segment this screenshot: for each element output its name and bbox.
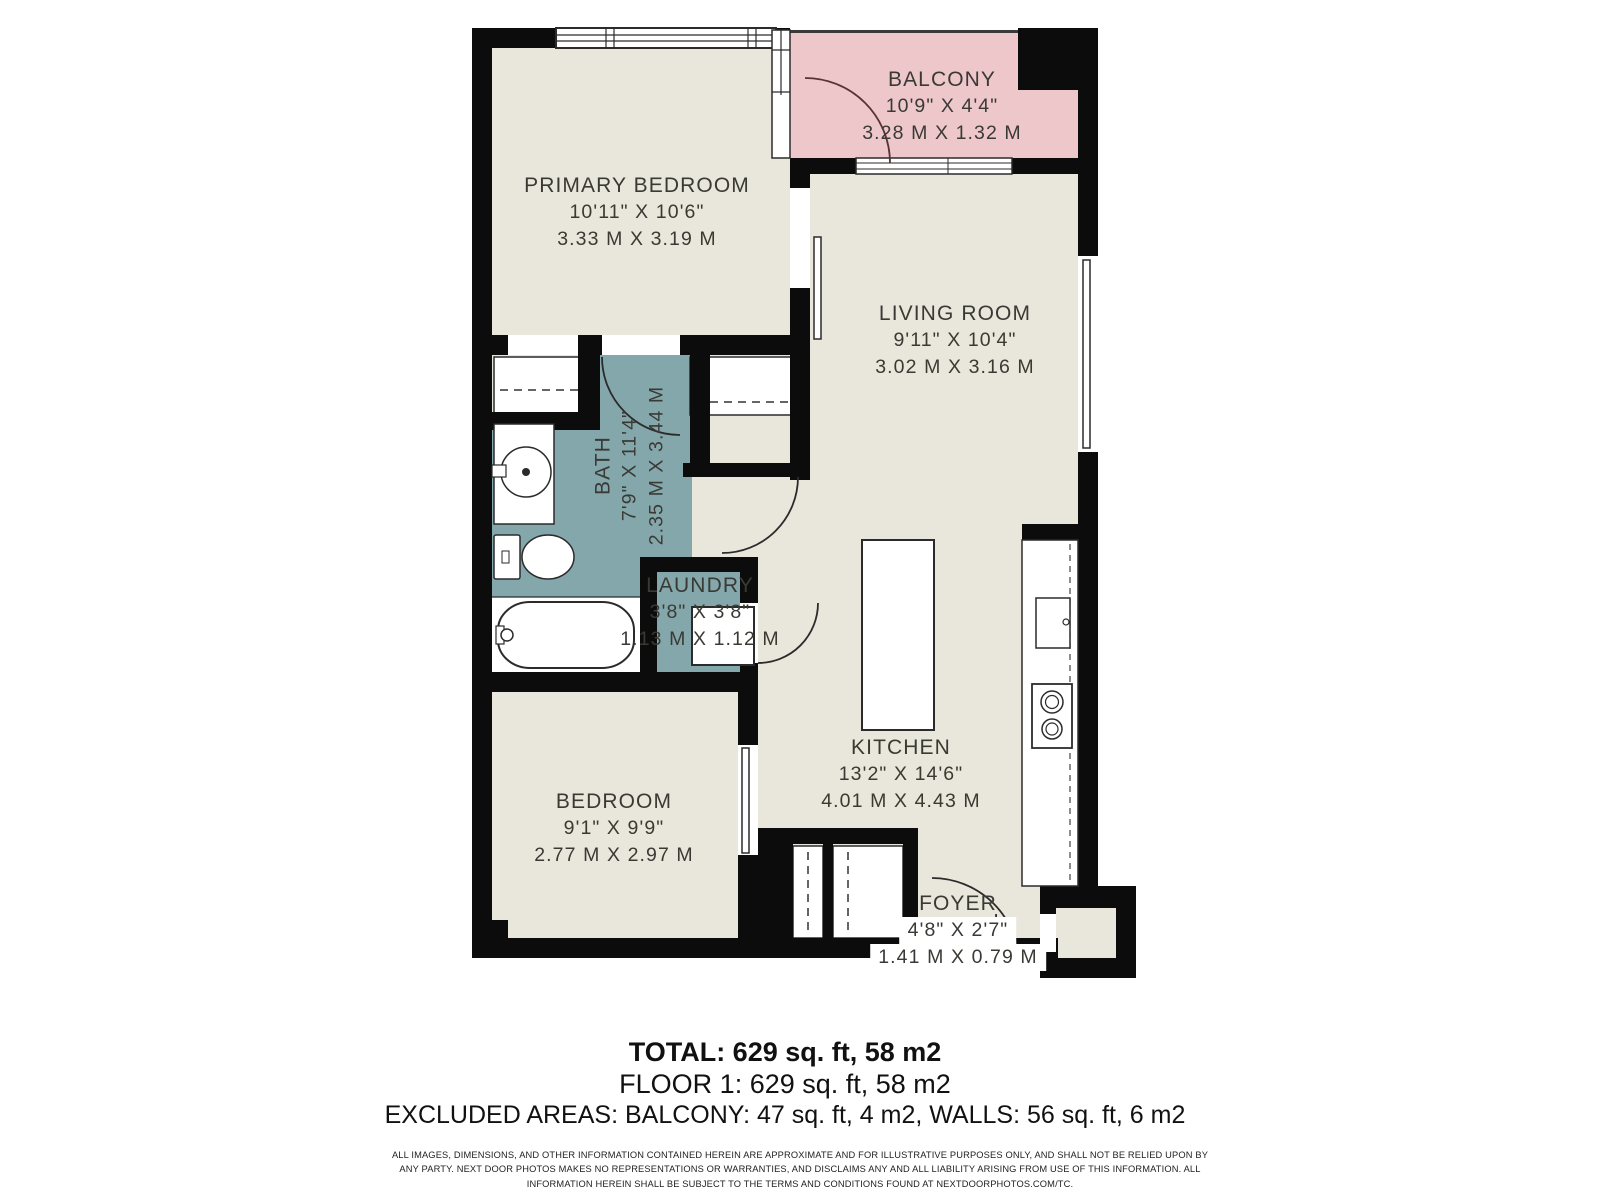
room-imperial: 10'9" X 4'4": [862, 93, 1022, 120]
room-label-balcony: BALCONY 10'9" X 4'4" 3.28 M X 1.32 M: [862, 66, 1022, 147]
room-metric: 2.77 M X 2.97 M: [534, 842, 694, 869]
room-imperial: 3'8" X 3'8": [620, 599, 780, 626]
area-summary: TOTAL: 629 sq. ft, 58 m2 FLOOR 1: 629 sq…: [0, 1036, 1585, 1131]
room-imperial: 7'9" X 11'4": [617, 356, 644, 576]
room-metric: 3.02 M X 3.16 M: [875, 354, 1035, 381]
room-label-bath: BATH 7'9" X 11'4" 2.35 M X 3.44 M: [590, 356, 671, 576]
room-name: BEDROOM: [534, 788, 694, 815]
room-name: BATH: [590, 356, 617, 576]
room-name: KITCHEN: [821, 734, 981, 761]
room-imperial: 10'11" X 10'6": [524, 199, 750, 226]
room-label-primary-bedroom: PRIMARY BEDROOM 10'11" X 10'6" 3.33 M X …: [524, 172, 750, 253]
excluded-areas-text: EXCLUDED AREAS: BALCONY: 47 sq. ft, 4 m2…: [0, 1100, 1585, 1131]
room-name: FOYER: [870, 890, 1046, 917]
room-metric: 1.13 M X 1.12 M: [620, 626, 780, 653]
room-label-bedroom: BEDROOM 9'1" X 9'9" 2.77 M X 2.97 M: [534, 788, 694, 869]
room-label-living-room: LIVING ROOM 9'11" X 10'4" 3.02 M X 3.16 …: [875, 300, 1035, 381]
room-label-laundry: LAUNDRY 3'8" X 3'8" 1.13 M X 1.12 M: [620, 572, 780, 653]
room-metric: 2.35 M X 3.44 M: [644, 356, 671, 576]
disclaimer-text: ALL IMAGES, DIMENSIONS, AND OTHER INFORM…: [385, 1148, 1215, 1191]
room-name: LIVING ROOM: [875, 300, 1035, 327]
room-metric: 3.33 M X 3.19 M: [524, 226, 750, 253]
room-label-kitchen: KITCHEN 13'2" X 14'6" 4.01 M X 4.43 M: [821, 734, 981, 815]
room-label-foyer: FOYER 4'8" X 2'7" 1.41 M X 0.79 M: [870, 890, 1046, 971]
floor-plan-drawing: [0, 0, 1600, 1200]
room-imperial: 9'11" X 10'4": [875, 327, 1035, 354]
room-name: PRIMARY BEDROOM: [524, 172, 750, 199]
total-area-text: TOTAL: 629 sq. ft, 58 m2: [0, 1036, 1585, 1068]
floor-plan-page: BALCONY 10'9" X 4'4" 3.28 M X 1.32 M PRI…: [0, 0, 1600, 1200]
room-imperial: 4'8" X 2'7": [870, 917, 1046, 944]
room-name: BALCONY: [862, 66, 1022, 93]
room-metric: 3.28 M X 1.32 M: [862, 120, 1022, 147]
room-name: LAUNDRY: [620, 572, 780, 599]
room-metric: 1.41 M X 0.79 M: [870, 944, 1046, 971]
floor-area-text: FLOOR 1: 629 sq. ft, 58 m2: [0, 1068, 1585, 1100]
room-imperial: 13'2" X 14'6": [821, 761, 981, 788]
room-metric: 4.01 M X 4.43 M: [821, 788, 981, 815]
room-imperial: 9'1" X 9'9": [534, 815, 694, 842]
